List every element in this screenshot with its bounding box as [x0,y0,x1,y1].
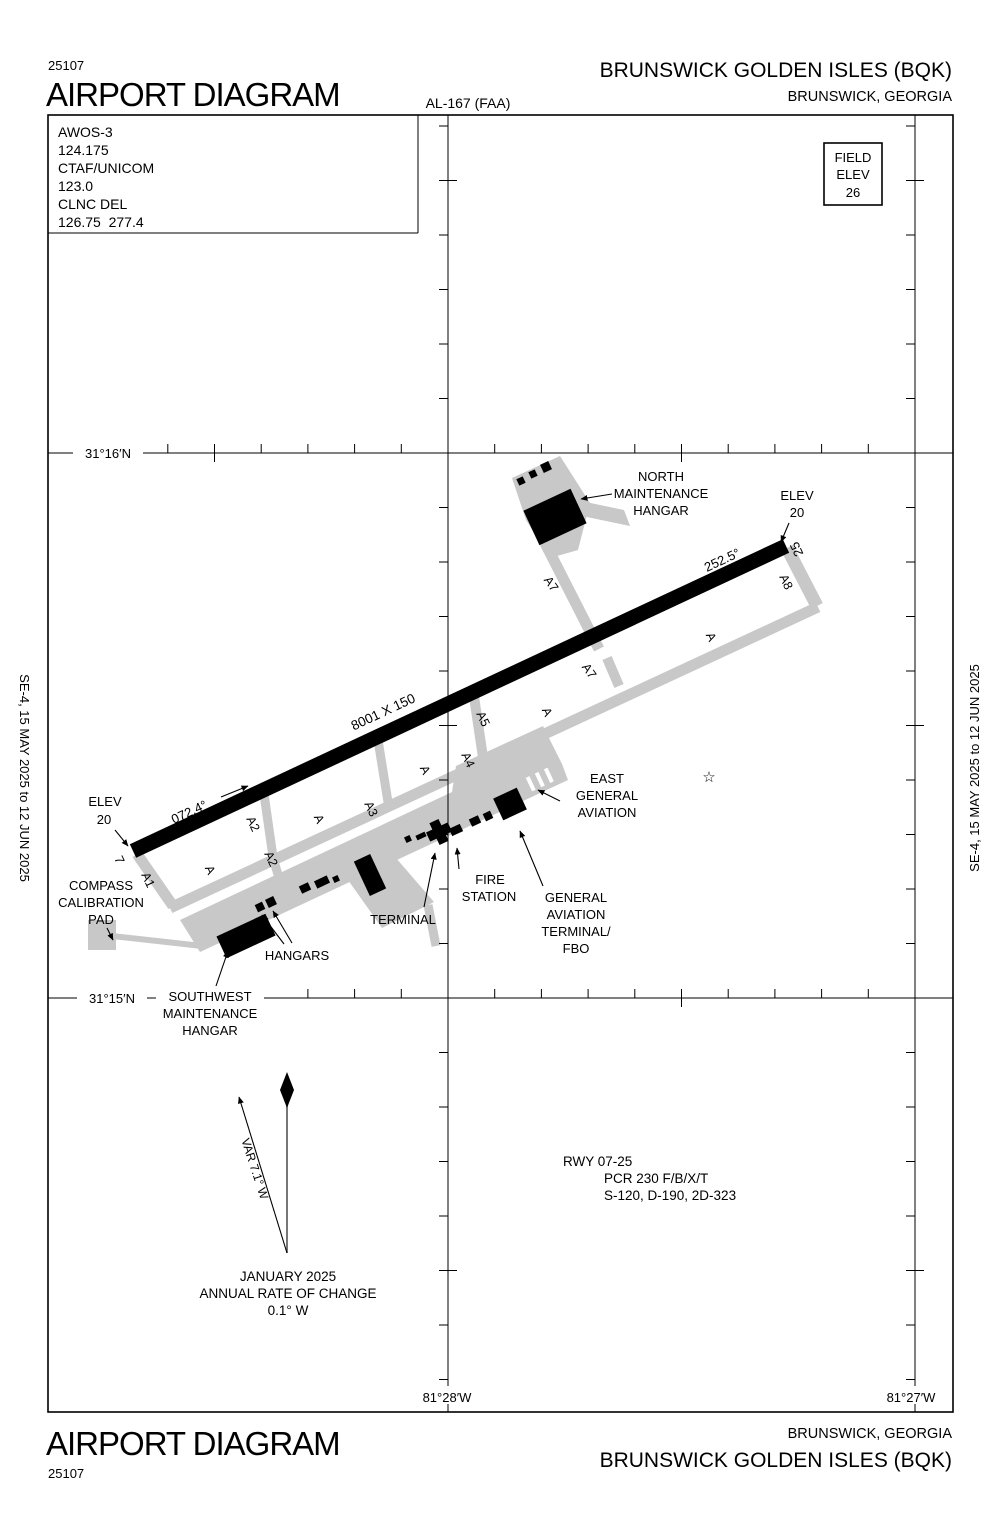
compass-rose: VAR 7.1° W JANUARY 2025 ANNUAL RATE OF C… [199,1072,376,1318]
svg-text:CLNC DEL: CLNC DEL [58,196,127,212]
header-chart-code: 25107 [48,58,84,73]
svg-text:STATION: STATION [462,889,516,904]
taxiway-a2-north [264,794,273,857]
svg-text:EAST: EAST [590,771,624,786]
svg-text:AWOS-3: AWOS-3 [58,124,113,140]
svg-text:PCR 230 F/B/X/T: PCR 230 F/B/X/T [604,1171,708,1186]
ga-terminal-callout: GENERAL AVIATION TERMINAL/ FBO [520,831,611,956]
svg-text:ELEV: ELEV [836,167,870,182]
svg-text:SOUTHWEST: SOUTHWEST [168,989,251,1004]
svg-text:S-120, D-190, 2D-323: S-120, D-190, 2D-323 [604,1188,736,1203]
svg-text:A: A [703,630,719,644]
svg-text:CALIBRATION: CALIBRATION [58,895,144,910]
footer-chart-code: 25107 [48,1466,84,1481]
svg-text:PAD: PAD [88,912,114,927]
airport-diagram-page: 25107 AIRPORT DIAGRAM AL-167 (FAA) BRUNS… [0,0,1000,1533]
svg-text:20: 20 [790,505,804,520]
svg-text:MAINTENANCE: MAINTENANCE [614,486,709,501]
comm-frequencies: AWOS-3 124.175 CTAF/UNICOM 123.0 CLNC DE… [58,124,154,230]
true-north-arrowhead [280,1072,294,1108]
effective-dates-left: SE-4, 15 MAY 2025 to 12 JUN 2025 [17,674,32,882]
svg-text:HANGAR: HANGAR [633,503,689,518]
svg-text:26: 26 [846,185,860,200]
header-al-ref: AL-167 (FAA) [426,95,511,111]
runway-data-block: RWY 07-25 PCR 230 F/B/X/T S-120, D-190, … [563,1154,736,1203]
lon-81-27-label: 81°27′W [887,1390,937,1405]
svg-text:TERMINAL: TERMINAL [370,912,436,927]
svg-text:AVIATION: AVIATION [578,805,637,820]
svg-text:124.175: 124.175 [58,142,109,158]
svg-text:A: A [202,863,218,877]
svg-text:ELEV: ELEV [88,794,122,809]
footer-city: BRUNSWICK, GEORGIA [788,1426,953,1442]
svg-text:A2: A2 [243,814,262,834]
svg-text:123.0: 123.0 [58,178,93,194]
svg-text:A: A [311,812,327,826]
header-city: BRUNSWICK, GEORGIA [788,89,953,105]
svg-text:126.75 277.4: 126.75 277.4 [58,214,144,230]
variation-rate-label: ANNUAL RATE OF CHANGE [199,1286,376,1301]
svg-text:COMPASS: COMPASS [69,878,133,893]
svg-text:CTAF/UNICOM: CTAF/UNICOM [58,160,154,176]
star-symbol: ☆ [702,769,715,786]
svg-text:RWY 07-25: RWY 07-25 [563,1154,632,1169]
variation-date: JANUARY 2025 [240,1269,336,1284]
svg-text:GENERAL: GENERAL [545,890,607,905]
svg-text:HANGAR: HANGAR [182,1023,238,1038]
svg-text:HANGARS: HANGARS [265,948,330,963]
lon-81-28-label: 81°28′W [423,1390,473,1405]
variation-rate: 0.1° W [268,1303,309,1318]
svg-text:20: 20 [97,812,111,827]
compass-pad-connector [112,936,202,946]
svg-text:A8: A8 [776,572,795,592]
taxiway-labels: A1 A2 A2 A3 A4 A5 A7 A7 A8 A A A A A [138,572,795,890]
header-airport-name: BRUNSWICK GOLDEN ISLES (BQK) [600,59,952,82]
footer-title: AIRPORT DIAGRAM [46,1425,340,1462]
fire-station-callout: FIRE STATION [457,848,516,904]
taxiway-a7-south [607,658,619,686]
svg-text:GENERAL: GENERAL [576,788,638,803]
header-title: AIRPORT DIAGRAM [46,76,340,113]
airport-diagram-chart: 25107 AIRPORT DIAGRAM AL-167 (FAA) BRUNS… [0,0,1000,1533]
svg-text:AVIATION: AVIATION [547,907,606,922]
taxiway-a3 [378,740,388,802]
effective-dates-right: SE-4, 15 MAY 2025 to 12 JUN 2025 [967,664,982,872]
elev-sw-callout: ELEV 20 [88,794,128,846]
svg-text:FIRE: FIRE [475,872,505,887]
svg-text:TERMINAL/: TERMINAL/ [541,924,611,939]
sw-hangar-callout: SOUTHWEST MAINTENANCE HANGAR [156,951,264,1038]
footer-airport-name: BRUNSWICK GOLDEN ISLES (BQK) [600,1449,952,1472]
svg-text:A: A [539,705,555,719]
variation-label: VAR 7.1° W [238,1137,271,1202]
runway-number-7: 7 [111,853,128,866]
elev-ne-callout: ELEV 20 [780,488,814,542]
svg-text:ELEV: ELEV [780,488,814,503]
svg-text:NORTH: NORTH [638,469,684,484]
svg-text:FBO: FBO [563,941,590,956]
svg-text:FIELD: FIELD [835,150,872,165]
lat-31-15-label: 31°15′N [89,991,135,1006]
field-elev: FIELD ELEV 26 [835,150,872,200]
svg-text:MAINTENANCE: MAINTENANCE [163,1006,258,1021]
svg-text:A: A [417,763,433,777]
svg-text:A7: A7 [579,661,599,682]
lat-31-16-label: 31°16′N [85,446,131,461]
